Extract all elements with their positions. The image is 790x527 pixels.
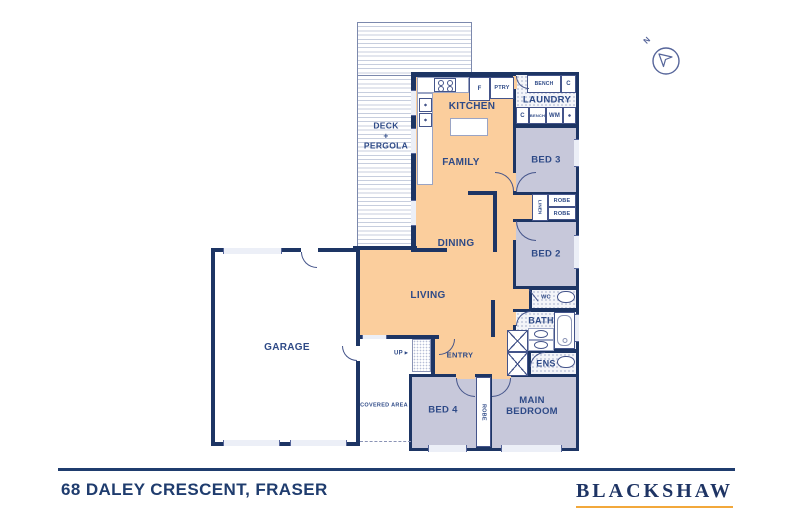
brand-logo: BLACKSHAW bbox=[576, 480, 733, 508]
living-window bbox=[362, 335, 387, 339]
entry-label: ENTRY bbox=[447, 351, 474, 360]
deck-area-top bbox=[357, 22, 472, 76]
covered-area-label: COVERED AREA bbox=[360, 403, 408, 410]
garage-window-bottom-2 bbox=[290, 440, 347, 446]
ens-label: ENS bbox=[536, 359, 555, 370]
footer-divider-line bbox=[58, 468, 735, 471]
pantry-box: PTRY bbox=[490, 77, 514, 99]
bath-label: BATH bbox=[528, 316, 554, 327]
bed4-label: BED 4 bbox=[428, 404, 457, 415]
toilet-icon-wc bbox=[557, 291, 575, 303]
main-bedroom-label: MAIN BEDROOM bbox=[499, 396, 565, 418]
deck-area-side bbox=[357, 75, 415, 251]
basin-icon-ens bbox=[534, 341, 548, 349]
kitchen-window-2 bbox=[411, 128, 416, 154]
robe-cupboard-2: ROBE bbox=[548, 207, 576, 220]
bench-box-bottom: BENCH bbox=[529, 107, 546, 124]
robe-cupboard-1: ROBE bbox=[548, 194, 576, 207]
stove-icon bbox=[434, 78, 456, 92]
wall-steps-right bbox=[431, 337, 435, 378]
deck-label-line1: DECK bbox=[364, 121, 408, 131]
main-bedroom-window bbox=[501, 445, 562, 452]
stairs-up-label: UP ▸ bbox=[394, 350, 408, 357]
linen-cupboard: LINEN bbox=[532, 194, 548, 221]
living-label: LIVING bbox=[410, 290, 445, 302]
stairs-steps bbox=[412, 339, 431, 372]
stove-burner bbox=[438, 86, 444, 92]
north-compass-icon bbox=[651, 46, 681, 76]
bath-tub-icon bbox=[554, 312, 575, 349]
sink-icon-2 bbox=[419, 113, 432, 127]
wall-dining-stub-v bbox=[493, 191, 497, 252]
basin-icon-bath bbox=[534, 330, 548, 338]
family-window bbox=[411, 200, 416, 226]
family-label: FAMILY bbox=[442, 157, 480, 169]
north-label: N bbox=[642, 35, 652, 45]
dining-label: DINING bbox=[438, 238, 475, 250]
bed2-window bbox=[574, 235, 579, 269]
wall-hall-stub-v bbox=[491, 300, 495, 337]
deck-label: DECK + PERGOLA bbox=[364, 121, 408, 152]
fridge-box: F bbox=[469, 77, 490, 101]
covered-area-dashed-line bbox=[360, 441, 411, 442]
stove-burner bbox=[447, 86, 453, 92]
bench-box-top: BENCH bbox=[527, 75, 561, 93]
kitchen-window-1 bbox=[411, 90, 416, 116]
bed3-label: BED 3 bbox=[531, 154, 560, 165]
wall-living-top bbox=[353, 246, 417, 250]
washing-machine-box: WM bbox=[546, 107, 563, 124]
bed3-window bbox=[574, 139, 579, 167]
bed4-window bbox=[428, 445, 467, 452]
cupboard-box-bottom: C bbox=[516, 107, 529, 124]
wc-label: WC bbox=[541, 295, 551, 302]
cupboard-box-top: C bbox=[561, 75, 576, 93]
laundry-tub-icon bbox=[563, 107, 576, 124]
bed2-label: BED 2 bbox=[531, 248, 560, 259]
deck-label-line2: + bbox=[364, 131, 408, 141]
main-robe-cupboard: ROBE bbox=[476, 377, 491, 447]
garage-window-bottom-1 bbox=[223, 440, 280, 446]
toilet-icon-ens bbox=[557, 356, 575, 368]
hall-cupboard-xbox-1 bbox=[507, 330, 528, 352]
hall-cupboard-xbox-2 bbox=[507, 352, 528, 376]
floor-plan-page: DECK + PERGOLA bbox=[0, 0, 790, 527]
island-bench bbox=[450, 118, 488, 136]
laundry-label: LAUNDRY bbox=[523, 94, 571, 105]
sink-icon-1 bbox=[419, 98, 432, 112]
address-title: 68 DALEY CRESCENT, FRASER bbox=[61, 480, 328, 500]
deck-label-line3: PERGOLA bbox=[364, 141, 408, 151]
garage-window-top bbox=[223, 248, 282, 254]
kitchen-label: KITCHEN bbox=[449, 101, 496, 113]
garage-label: GARAGE bbox=[264, 342, 310, 354]
